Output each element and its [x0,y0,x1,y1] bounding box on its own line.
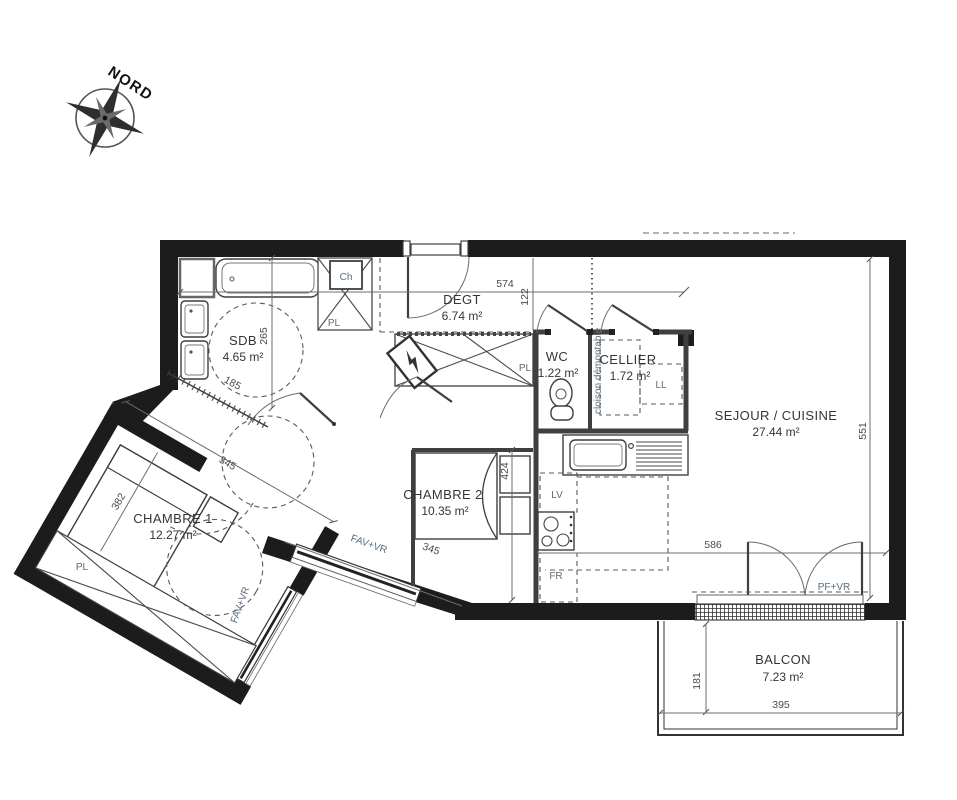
cellier-area: 1.72 m² [610,369,651,383]
chambre2-nightstand-2 [500,497,530,534]
balcony-french-door [692,542,870,620]
sdb-area: 4.65 m² [223,350,264,364]
degt-area: 6.74 m² [442,309,483,323]
chambre2-room [415,447,530,603]
chambre1-area: 12.27 m² [149,528,196,542]
cellier-door [612,305,656,333]
chambre1-window-label: FAV+VR [229,585,252,624]
dim-sejour-height: 551 [857,422,869,440]
chambre2-area: 10.35 m² [421,504,468,518]
degt-name: DEGT [443,292,481,307]
compass-rose: NORD [50,63,159,173]
balcon-area: 7.23 m² [763,670,804,684]
degt-closet-label: PL [328,318,341,329]
balcony-threshold [695,604,865,620]
dim-chambre2-height: 424 [499,462,511,480]
wc-door [548,305,590,333]
removable-partition-label: cloison démontable [593,327,604,414]
chambre1-name: CHAMBRE 1 [133,511,212,526]
hall-closet-label: PL [519,363,532,374]
dim-entry-depth: 122 [519,288,531,306]
floor-plan-drawing: NORD [0,0,957,800]
balcony-door-label: PF+VR [818,582,851,593]
dim-sejour-width: 586 [704,539,722,551]
washing-machine-label: LL [655,380,667,391]
wc-area: 1.22 m² [538,366,579,380]
chambre2-window-label: FAV+VR [349,533,388,556]
floor-plan-page: NORD [0,0,957,800]
cooktop [538,512,574,550]
balcon-name: BALCON [755,652,811,667]
dim-entry-width: 574 [496,278,514,290]
chambre1-closet-label: PL [76,562,89,573]
dim-chambre2-width: 345 [421,541,442,558]
dim-sdb-width: 185 [222,374,243,393]
kitchen-sink-counter [563,435,688,475]
sdb-door [300,393,334,424]
fridge-label: FR [549,571,562,582]
toilet [550,379,573,420]
dim-balcon-width: 395 [772,699,790,711]
chambre2-name: CHAMBRE 2 [403,487,482,502]
sdb-name: SDB [229,333,257,348]
sdb-cabinet [180,259,214,297]
bathtub [216,259,320,297]
dim-sdb-height: 265 [258,327,270,345]
sejour-name: SEJOUR / CUISINE [715,408,838,423]
water-heater-label: Ch [340,272,353,283]
sejour-area: 27.44 m² [752,425,799,439]
wc-name: WC [546,349,568,364]
cellier-name: CELLIER [600,352,657,367]
water-heater-closet [318,258,372,330]
dishwasher-label: LV [551,490,563,501]
sdb-sinks [181,301,208,379]
dim-balcon-depth: 181 [691,672,703,690]
